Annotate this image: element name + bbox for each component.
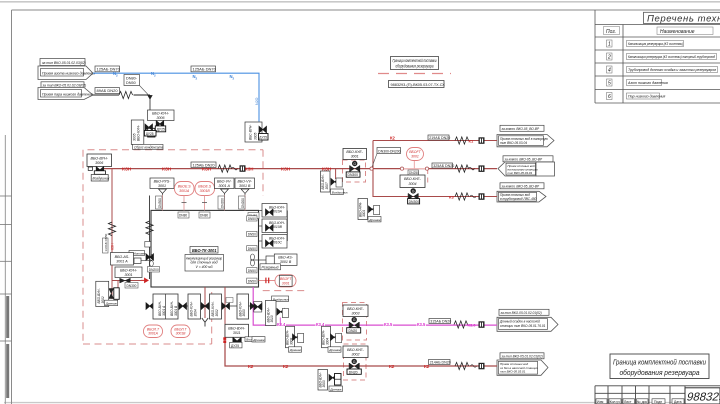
svg-text:3001 В: 3001 В bbox=[280, 260, 292, 264]
svg-text:Трубопровод донного осадка и з: Трубопровод донного осадка и зачистки ре… bbox=[628, 68, 716, 72]
svg-text:ВБОЕ.S: ВБОЕ.S bbox=[178, 184, 192, 188]
svg-text:DN50: DN50 bbox=[248, 247, 256, 251]
svg-text:Дренаж: Дренаж bbox=[328, 348, 341, 352]
svg-text:3001 А: 3001 А bbox=[116, 259, 128, 263]
svg-text:ВБОЕ.S: ВБОЕ.S bbox=[198, 184, 212, 188]
svg-text:3001 А: 3001 А bbox=[219, 184, 231, 188]
svg-text:ВБО-КУЕ-: ВБО-КУЕ- bbox=[347, 348, 364, 352]
svg-text:DN300: DN300 bbox=[409, 200, 420, 204]
svg-text:DN50: DN50 bbox=[126, 81, 136, 85]
svg-text:ВБО-КУН-: ВБО-КУН- bbox=[120, 269, 138, 273]
svg-text:Граница комплектной поставки: Граница комплектной поставки bbox=[393, 58, 437, 63]
svg-text:ВБО-РУS-: ВБО-РУS- bbox=[154, 180, 172, 184]
svg-text:3010С: 3010С bbox=[272, 241, 283, 245]
svg-text:Дренаж: Дренаж bbox=[368, 218, 381, 222]
svg-text:3004: 3004 bbox=[409, 182, 417, 186]
svg-text:3001 В: 3001 В bbox=[174, 305, 178, 316]
svg-text:325АБ DN20: 325АБ DN20 bbox=[433, 164, 454, 168]
svg-text:№ док: № док bbox=[637, 400, 647, 404]
svg-text:N2O: N2O bbox=[255, 97, 259, 105]
svg-text:за тип ВКО-05.01.02.01(02): за тип ВКО-05.01.02.01(02) bbox=[500, 311, 542, 315]
svg-text:Перечень технол: Перечень технол bbox=[647, 13, 720, 24]
svg-text:214АБ DN20: 214АБ DN20 bbox=[430, 361, 451, 365]
svg-text:3010А: 3010А bbox=[272, 210, 283, 214]
svg-text:3005: 3005 bbox=[254, 132, 258, 140]
svg-text:станции тип ВКО-05.01.76.01: станции тип ВКО-05.01.76.01 bbox=[500, 324, 546, 328]
svg-text:125АБ DN70: 125АБ DN70 bbox=[193, 67, 217, 72]
svg-text:ВБО-КУЕ-: ВБО-КУЕ- bbox=[347, 307, 364, 311]
svg-text:Канализация резервуара (К3 сис: Канализация резервуара (К3 системы) напо… bbox=[628, 55, 715, 59]
svg-text:КЗН: КЗН bbox=[245, 167, 253, 172]
svg-text:DN300: DN300 bbox=[127, 284, 137, 288]
svg-text:Дренаж: Дренаж bbox=[252, 338, 265, 342]
svg-text:3004: 3004 bbox=[326, 338, 330, 345]
svg-text:ВБО-КУЕ-: ВБО-КУЕ- bbox=[346, 150, 363, 154]
svg-text:3003: 3003 bbox=[352, 311, 360, 315]
svg-text:К3.5: К3.5 bbox=[417, 322, 426, 327]
svg-text:DN20: DN20 bbox=[349, 329, 358, 333]
svg-text:4: 4 bbox=[608, 68, 611, 74]
svg-text:ВБО-АS-: ВБО-АS- bbox=[115, 255, 130, 259]
svg-text:3001 В: 3001 В bbox=[239, 184, 251, 188]
svg-text:Дренаж: Дренаж bbox=[289, 348, 302, 352]
svg-text:315АБ DN20: 315АБ DN20 bbox=[430, 320, 451, 324]
svg-text:ДУ25: ДУ25 bbox=[146, 132, 154, 136]
svg-text:3001В: 3001В bbox=[176, 332, 187, 336]
svg-text:89АБ DN20: 89АБ DN20 bbox=[97, 88, 119, 93]
svg-text:КЗН: КЗН bbox=[162, 167, 172, 172]
svg-text:для сточных вод: для сточных вод bbox=[191, 261, 218, 265]
svg-text:Поз.: Поз. bbox=[606, 29, 616, 35]
svg-text:219АБ DN20: 219АБ DN20 bbox=[429, 136, 450, 140]
svg-text:КЗН: КЗН bbox=[122, 167, 132, 172]
svg-text:за компл. ВКО-05_ВО-ВР: за компл. ВКО-05_ВО-ВР bbox=[504, 158, 543, 162]
svg-text:за компл. ВКО-05_ВО-ВР: за компл. ВКО-05_ВО-ВР bbox=[501, 127, 540, 131]
svg-text:13ЛАБ DN50: 13ЛАБ DN50 bbox=[104, 233, 108, 251]
svg-text:ВБО-ТК-3001: ВБО-ТК-3001 bbox=[192, 248, 217, 253]
svg-text:за тип ВКО-05.01.02.03(02): за тип ВКО-05.01.02.03(02) bbox=[41, 61, 86, 65]
svg-text:DN300: DN300 bbox=[158, 198, 162, 208]
svg-text:3010В: 3010В bbox=[272, 225, 283, 229]
svg-text:К2: К2 bbox=[389, 364, 395, 369]
svg-text:3001В: 3001В bbox=[200, 189, 211, 193]
svg-text:3001 А: 3001 А bbox=[162, 306, 166, 316]
svg-text:DN50: DN50 bbox=[248, 217, 256, 221]
svg-text:3010: 3010 bbox=[270, 315, 274, 322]
svg-text:К2: К2 bbox=[248, 364, 254, 369]
svg-text:3007: 3007 bbox=[325, 182, 329, 189]
svg-text:3001: 3001 bbox=[411, 155, 419, 159]
svg-text:9883293-(П)-ВК05.03.07-ТХ.СХ: 9883293-(П)-ВК05.03.07-ТХ.СХ bbox=[391, 83, 446, 87]
svg-text:Прием азота низкого давления: Прием азота низкого давления bbox=[42, 71, 95, 75]
svg-text:ВБО-VV-: ВБО-VV- bbox=[217, 180, 232, 184]
svg-text:К2: К2 bbox=[283, 364, 289, 369]
svg-text:3004: 3004 bbox=[193, 309, 197, 316]
svg-text:3001: 3001 bbox=[158, 184, 166, 188]
svg-text:тип ВКО-05.03.01: тип ВКО-05.03.01 bbox=[500, 370, 526, 374]
svg-text:ВБО-ВУН-: ВБО-ВУН- bbox=[228, 327, 246, 331]
svg-text:тип ВКО-05.03.03: тип ВКО-05.03.03 bbox=[508, 171, 533, 175]
svg-text:ВБО-КУН-: ВБО-КУН- bbox=[152, 112, 170, 116]
svg-text:DN250: DN250 bbox=[409, 171, 419, 175]
svg-text:Сброс конденсата: Сброс конденсата bbox=[134, 145, 163, 149]
svg-text:Граница комплектной поставки: Граница комплектной поставки bbox=[613, 358, 706, 367]
svg-text:G: G bbox=[412, 189, 415, 193]
svg-text:3001: 3001 bbox=[351, 155, 359, 159]
svg-text:К3.5: К3.5 bbox=[384, 322, 393, 327]
svg-text:Дренаж: Дренаж bbox=[105, 301, 118, 305]
svg-text:К3.4: К3.4 bbox=[277, 322, 286, 327]
svg-text:1: 1 bbox=[608, 42, 611, 48]
svg-text:ВБО-ВУН-: ВБО-ВУН- bbox=[91, 156, 109, 160]
svg-text:DN80: DN80 bbox=[200, 214, 208, 218]
svg-text:5: 5 bbox=[608, 81, 611, 87]
svg-text:3003: 3003 bbox=[322, 380, 326, 387]
svg-text:ВБО-VV-: ВБО-VV- bbox=[237, 180, 252, 184]
svg-text:3001: 3001 bbox=[362, 210, 366, 217]
svg-text:125АБ DN70: 125АБ DN70 bbox=[97, 67, 121, 72]
svg-text:оборудования резервуара: оборудования резервуара bbox=[620, 368, 700, 377]
svg-text:3001А: 3001А bbox=[148, 332, 159, 336]
svg-text:за компл. ВКО-05_ВО-ВР: за компл. ВКО-05_ВО-ВР bbox=[501, 185, 540, 189]
svg-text:3001А: 3001А bbox=[179, 189, 190, 193]
svg-text:6: 6 bbox=[608, 94, 611, 100]
svg-text:ВБС-ВУН-: ВБС-ВУН- bbox=[249, 124, 253, 140]
svg-text:оборудования резервуара: оборудования резервуара bbox=[396, 64, 434, 69]
svg-text:Подп: Подп bbox=[654, 400, 662, 404]
svg-text:3006: 3006 bbox=[95, 161, 104, 165]
svg-text:ДУ25: ДУ25 bbox=[157, 128, 165, 132]
svg-text:3005: 3005 bbox=[133, 133, 137, 141]
svg-text:Пар низкого давления: Пар низкого давления bbox=[628, 95, 665, 99]
svg-text:ВБО-КУЕ-: ВБО-КУЕ- bbox=[404, 177, 421, 181]
svg-text:G: G bbox=[353, 162, 356, 166]
svg-text:тип ВКО-05.03.04: тип ВКО-05.03.04 bbox=[500, 141, 527, 145]
svg-text:ВБО-АS-: ВБО-АS- bbox=[278, 256, 293, 260]
svg-text:DN20: DN20 bbox=[349, 370, 358, 374]
svg-text:Изм: Изм bbox=[597, 400, 604, 404]
svg-text:3003: 3003 bbox=[242, 309, 246, 316]
svg-text:К1: К1 bbox=[469, 138, 474, 143]
svg-text:G: G bbox=[353, 318, 356, 322]
svg-text:ДУ25: ДУ25 bbox=[231, 344, 239, 348]
svg-text:Воздушник: Воздушник bbox=[332, 190, 348, 194]
svg-text:3002: 3002 bbox=[215, 309, 219, 316]
svg-text:Азот низкого давления: Азот низкого давления bbox=[627, 81, 668, 85]
svg-text:ДУ25: ДУ25 bbox=[259, 136, 267, 140]
svg-text:3006: 3006 bbox=[157, 116, 165, 120]
svg-text:V = 400 м3: V = 400 м3 bbox=[196, 265, 213, 269]
svg-text:Прием пара низкого давления: Прием пара низкого давления bbox=[42, 92, 93, 96]
svg-text:Лист: Лист bbox=[624, 400, 632, 404]
svg-text:Резервный: Резервный bbox=[262, 266, 279, 270]
svg-text:3001: 3001 bbox=[125, 273, 133, 277]
svg-text:КЗН: КЗН bbox=[111, 243, 115, 250]
svg-text:Канализация резервуара (К3 сис: Канализация резервуара (К3 системы) bbox=[628, 42, 683, 46]
svg-text:DN80: DN80 bbox=[179, 214, 187, 218]
svg-text:Дата: Дата bbox=[674, 400, 682, 404]
svg-text:ВБОFТ: ВБОFТ bbox=[280, 277, 292, 281]
svg-text:Кол.уч: Кол.уч bbox=[610, 400, 620, 404]
svg-text:3001: 3001 bbox=[282, 282, 290, 286]
svg-text:за тип ВКО-05.01.02.03(02): за тип ВКО-05.01.02.03(02) bbox=[42, 84, 87, 88]
svg-text:DN300-DN200: DN300-DN200 bbox=[378, 149, 400, 153]
svg-text:DN200: DN200 bbox=[149, 268, 159, 272]
svg-text:в трубопровод ЛВС-450: в трубопровод ЛВС-450 bbox=[500, 197, 537, 201]
svg-text:DN50: DN50 bbox=[248, 279, 256, 283]
svg-text:Дренаж: Дренаж bbox=[329, 387, 342, 391]
svg-text:КЗН: КЗН bbox=[281, 167, 291, 172]
svg-text:DN80-: DN80- bbox=[126, 76, 138, 80]
svg-text:Наименование: Наименование bbox=[660, 29, 695, 35]
svg-text:2: 2 bbox=[607, 55, 611, 61]
svg-text:3002: 3002 bbox=[352, 352, 360, 356]
svg-text:DN50: DN50 bbox=[248, 269, 256, 273]
svg-text:DN300: DN300 bbox=[348, 173, 359, 177]
svg-text:К3.6: К3.6 bbox=[468, 323, 477, 328]
svg-text:DN200: DN200 bbox=[221, 198, 225, 208]
svg-text:К2: К2 bbox=[390, 136, 396, 141]
svg-text:ВБОFТ: ВБОFТ bbox=[409, 150, 421, 154]
svg-text:К3: К3 bbox=[449, 194, 454, 199]
svg-text:125АБ DN20: 125АБ DN20 bbox=[193, 164, 215, 168]
svg-text:за тип ВКО-05.01.02.01(02): за тип ВКО-05.01.02.01(02) bbox=[501, 355, 543, 359]
svg-text:DN200: DN200 bbox=[241, 198, 245, 208]
svg-text:9883293.: 9883293. bbox=[685, 391, 720, 404]
svg-text:3011: 3011 bbox=[233, 331, 241, 335]
svg-text:G: G bbox=[353, 360, 356, 364]
svg-text:DN50: DN50 bbox=[248, 233, 256, 237]
svg-text:ВБО-КУН-: ВБО-КУН- bbox=[137, 124, 141, 141]
svg-text:Воздушник: Воздушник bbox=[93, 177, 110, 181]
